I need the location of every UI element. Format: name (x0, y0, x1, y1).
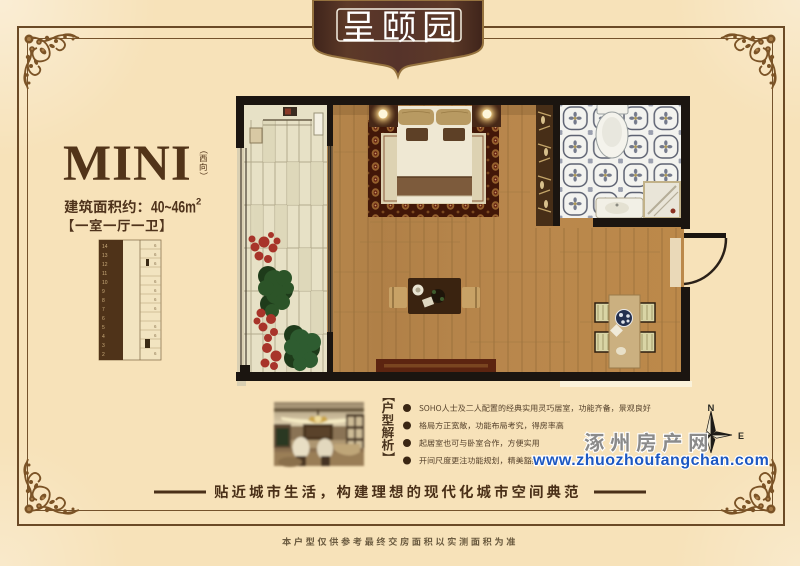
svg-text:5: 5 (102, 325, 105, 331)
svg-text:40~46m: 40~46m (151, 199, 196, 217)
svg-text:2: 2 (196, 197, 201, 208)
svg-text:6: 6 (102, 316, 105, 322)
svg-text:7: 7 (102, 307, 105, 313)
svg-text:www.zhuozhoufangchan.com: www.zhuozhoufangchan.com (532, 452, 769, 469)
svg-text:14: 14 (102, 244, 108, 250)
svg-text:9: 9 (102, 289, 105, 295)
svg-text:10: 10 (102, 280, 108, 286)
svg-text:3: 3 (102, 343, 105, 349)
svg-text:12: 12 (102, 262, 108, 268)
svg-text:8: 8 (102, 298, 105, 304)
svg-text:11: 11 (102, 271, 107, 277)
svg-text:4: 4 (102, 334, 105, 340)
svg-text:13: 13 (102, 253, 108, 259)
svg-text:2: 2 (102, 352, 105, 358)
